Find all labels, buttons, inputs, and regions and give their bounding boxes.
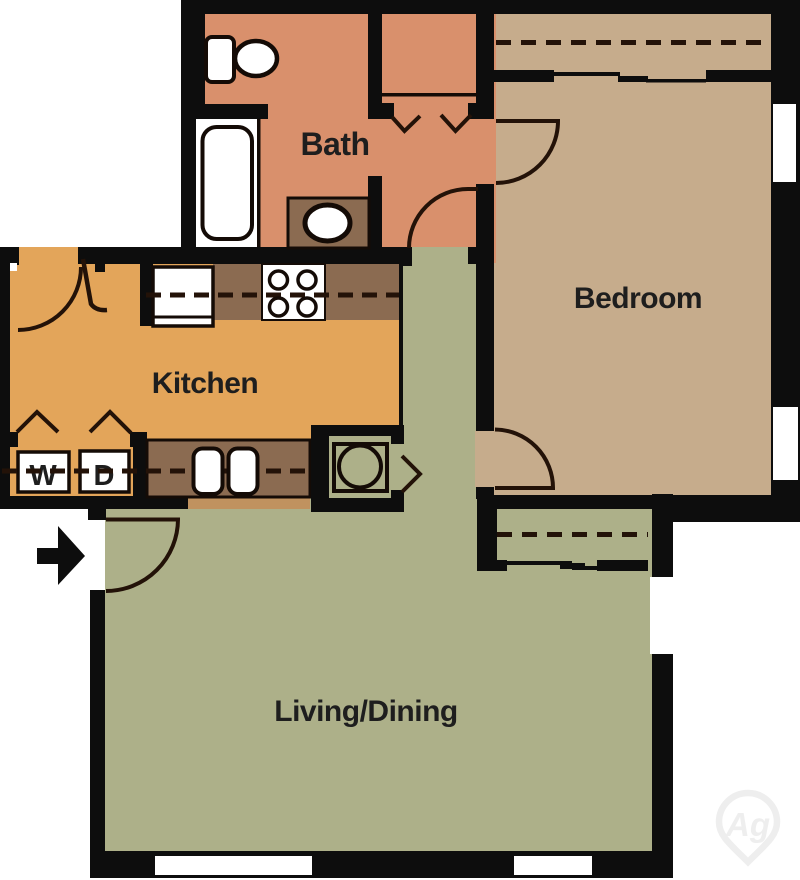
svg-text:D: D [94, 460, 115, 492]
svg-text:Bath: Bath [300, 126, 369, 162]
svg-text:Kitchen: Kitchen [152, 367, 259, 400]
svg-text:Ag: Ag [725, 806, 770, 843]
svg-text:Living/Dining: Living/Dining [274, 695, 457, 728]
svg-text:W: W [29, 460, 57, 492]
svg-text:Bedroom: Bedroom [574, 282, 702, 315]
